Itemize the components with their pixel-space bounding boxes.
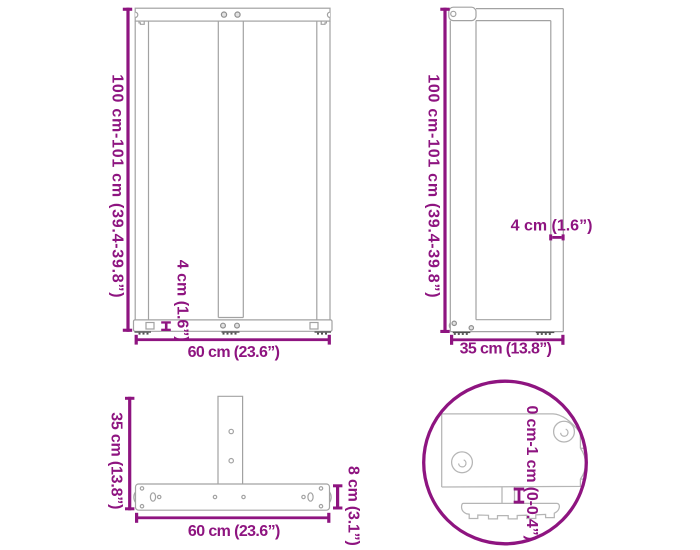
svg-text:35 cm (13.8”): 35 cm (13.8”) bbox=[108, 412, 125, 509]
svg-text:8 cm (3.1”): 8 cm (3.1”) bbox=[345, 466, 362, 546]
svg-text:0 cm-1 cm (0-0.4”): 0 cm-1 cm (0-0.4”) bbox=[523, 406, 540, 541]
svg-text:35 cm (13.8”): 35 cm (13.8”) bbox=[460, 341, 552, 358]
svg-text:4 cm (1.6”): 4 cm (1.6”) bbox=[174, 260, 191, 342]
svg-text:60 cm (23.6”): 60 cm (23.6”) bbox=[188, 523, 280, 540]
svg-text:100 cm-101 cm (39.4-39.8”): 100 cm-101 cm (39.4-39.8”) bbox=[425, 74, 442, 298]
svg-text:4 cm (1.6”): 4 cm (1.6”) bbox=[511, 218, 593, 235]
svg-text:60 cm (23.6”): 60 cm (23.6”) bbox=[188, 344, 280, 361]
svg-text:100 cm-101 cm (39.4-39.8”): 100 cm-101 cm (39.4-39.8”) bbox=[109, 74, 126, 298]
